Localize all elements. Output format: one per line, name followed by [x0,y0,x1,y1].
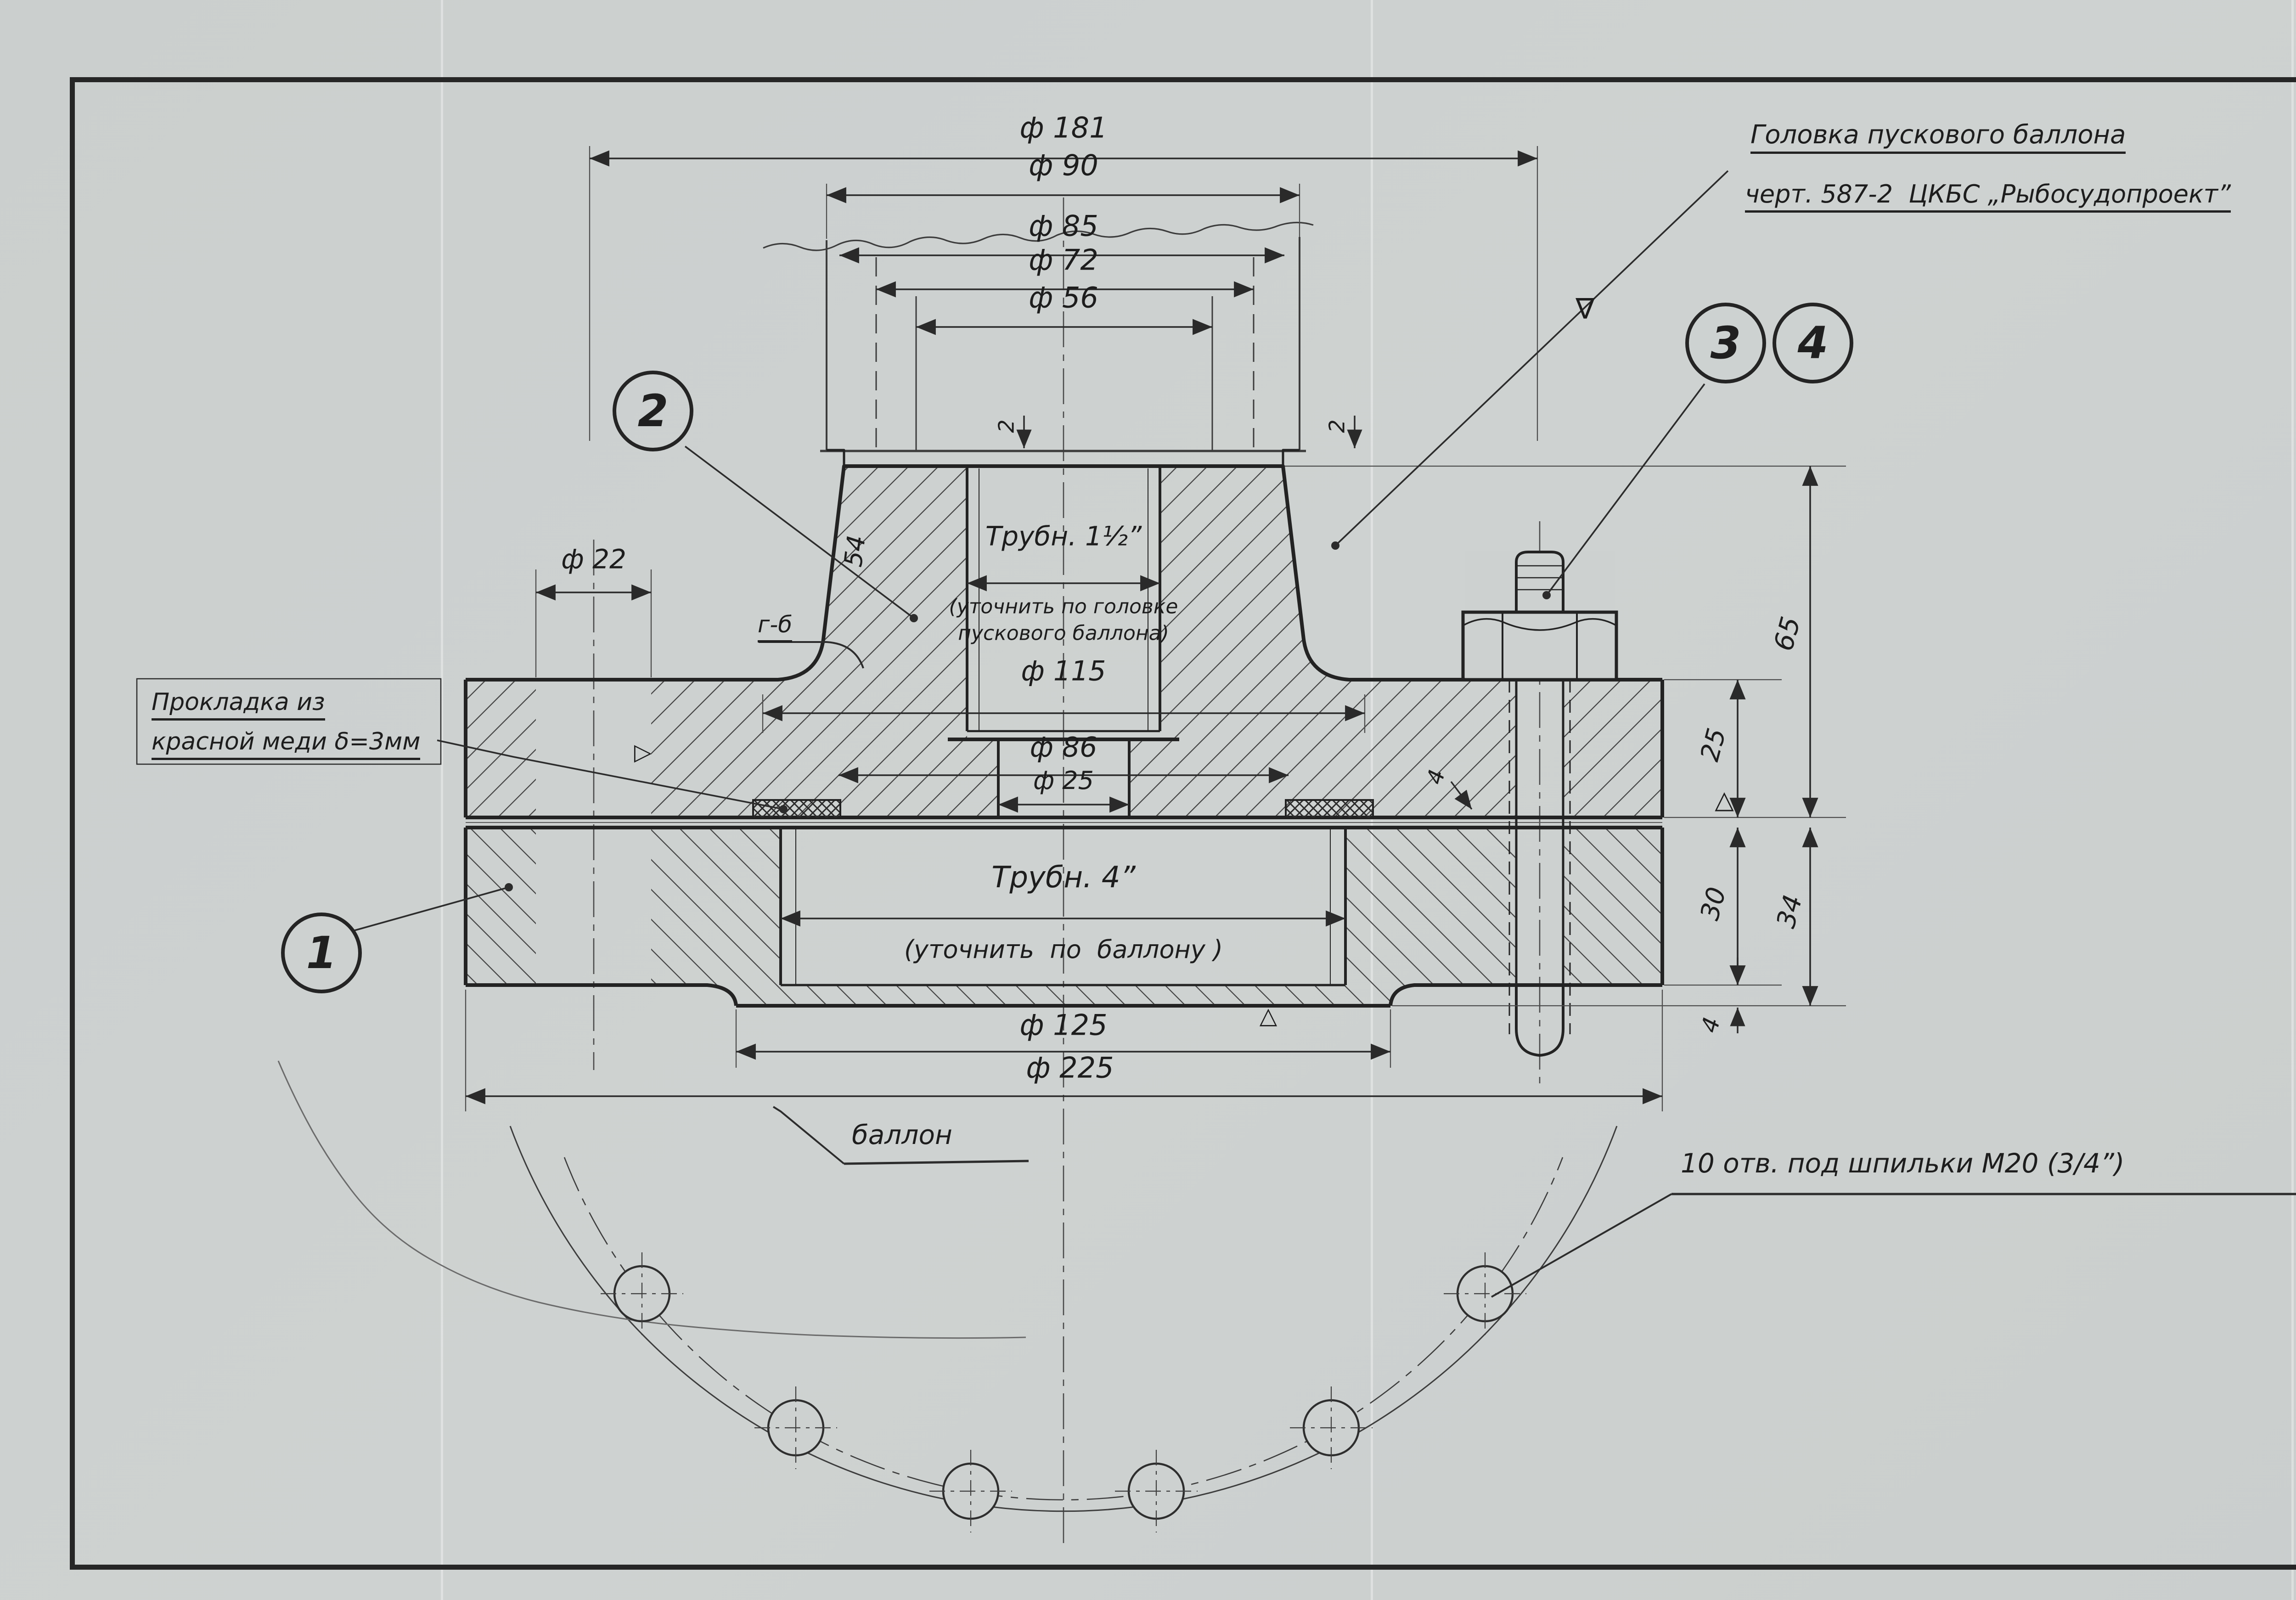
blueprint-sheet: ф 181 ф 90 ф 85 ф 72 ф 56 ф 22 ф 115 ф 8… [0,0,2296,1600]
dim-label-225: ф 225 [1026,1051,1114,1084]
dim-label-54: 54 [839,534,871,569]
dim-label-25: ф 25 [1033,766,1094,795]
dim-label-22: ф 22 [561,544,626,575]
dim-label-86: ф 86 [1030,732,1097,764]
drawing-canvas [0,0,2296,1600]
dim-label-85: ф 85 [1029,209,1098,242]
surface-finish-icon: ∇ [1576,292,1594,325]
head-note-line2: черт. 587-2 ЦКБС „Рыбосудопроект” [1745,180,2231,213]
callout-number: 1 [306,927,337,979]
head-note-line1: Головка пускового баллона [1750,120,2126,154]
pipe4-label: Трубн. 4” [991,861,1135,895]
dim-label-72: ф 72 [1029,243,1098,276]
pipe1-note-2: пускового баллона) [958,622,1169,646]
dim-label-56: ф 56 [1029,281,1098,314]
gasket-note-line1: Прокладка из [152,689,325,721]
dim-label-2a: 2 [995,419,1019,433]
callout-number: 4 [1798,317,1829,369]
dim-label-181: ф 181 [1019,111,1107,144]
pipe1-note-1: (уточнить по головке [949,596,1178,619]
callout-number: 3 [1711,317,1741,369]
gasket-note-line2: красной меди δ=3мм [152,728,420,760]
part-callout-2: 2 [613,371,693,451]
stud-holes-note: 10 отв. под шпильки М20 (3/4”) [1681,1148,2125,1179]
dim-label-90: ф 90 [1029,149,1098,181]
datum-triangle-icon: △ [1260,1003,1277,1029]
section-mark-label: г-б [758,612,792,642]
pipe1-label: Трубн. 1½” [985,521,1142,552]
callout-number: 2 [638,385,669,437]
pipe4-note: (уточнить по баллону ) [904,935,1223,964]
dim-label-115: ф 115 [1021,656,1106,687]
part-callout-1: 1 [281,913,362,993]
dim-label-2b: 2 [1325,419,1350,433]
dim-label-125: ф 125 [1019,1008,1107,1041]
part-callout-4: 4 [1773,303,1853,383]
datum-triangle-icon: △ [1715,786,1734,814]
balloon-label: баллон [852,1120,952,1150]
flag-marker-icon: ▷ [634,739,652,766]
part-callout-3: 3 [1685,303,1766,383]
